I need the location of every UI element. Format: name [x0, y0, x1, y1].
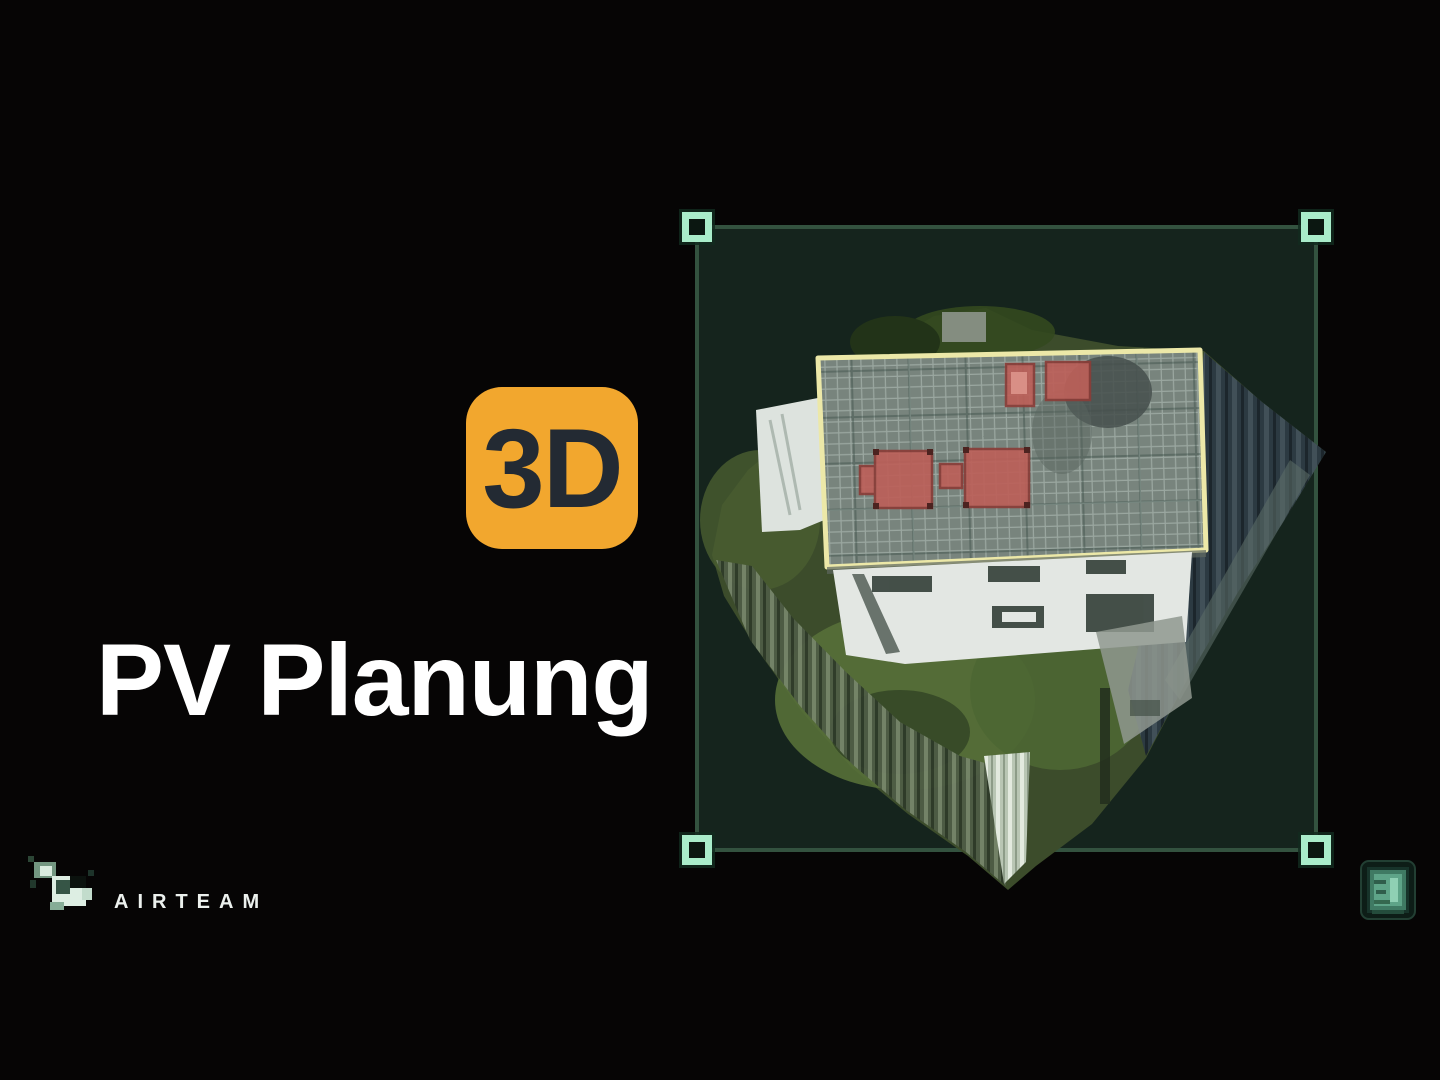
selection-handle-bottom-right[interactable] [1301, 835, 1331, 865]
selection-handle-top-right[interactable] [1301, 212, 1331, 242]
selection-handle-bottom-left[interactable] [682, 835, 712, 865]
badge-3d-label: 3D [482, 404, 621, 533]
airteam-drone-icon [26, 854, 100, 925]
page-title: PV Planung [96, 624, 696, 736]
brand-name: AIRTEAM [114, 891, 268, 914]
selection-handle-top-left[interactable] [682, 212, 712, 242]
brand-logo: AIRTEAM [26, 856, 268, 922]
selection-box[interactable] [695, 225, 1318, 852]
watermark-app-icon [1360, 860, 1416, 920]
badge-3d: 3D [466, 387, 638, 549]
